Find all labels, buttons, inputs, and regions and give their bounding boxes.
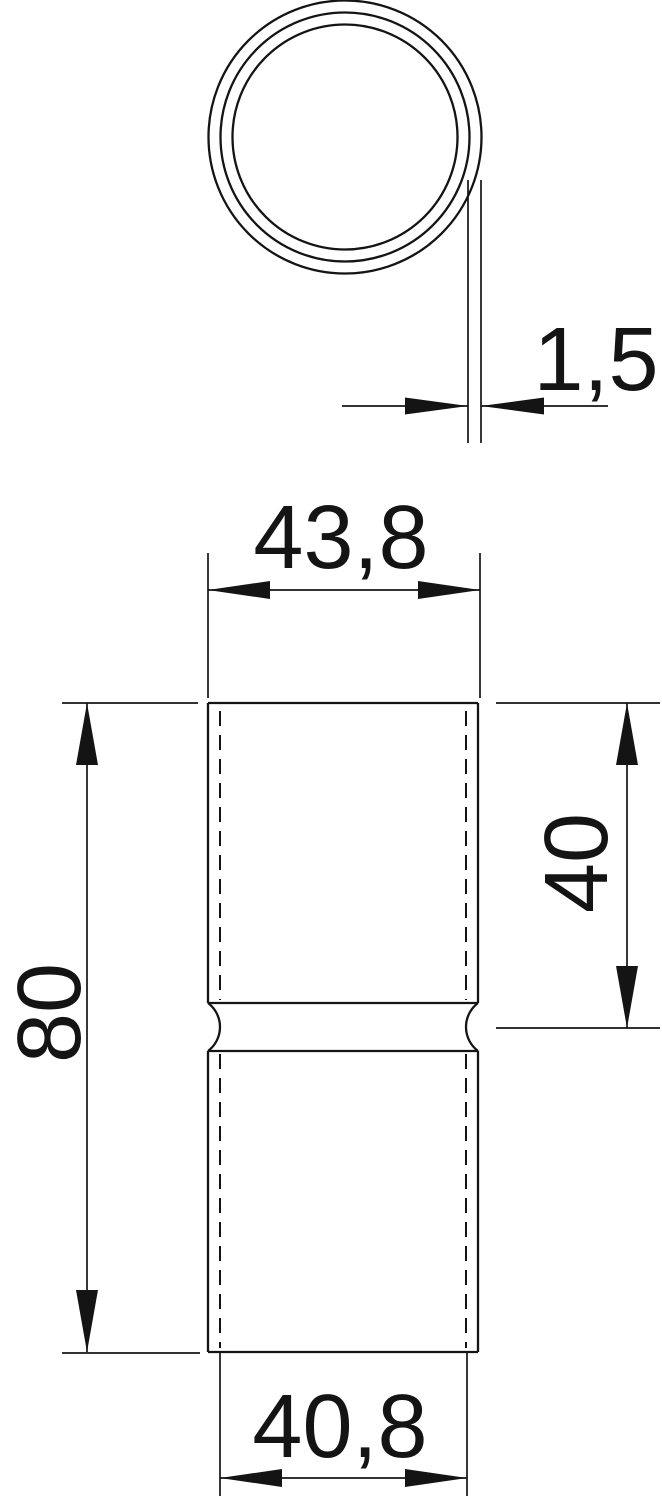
waist-right-bead-arc — [466, 1003, 478, 1051]
arrowhead-down-icon — [76, 1290, 98, 1352]
arrowhead-down-icon — [616, 966, 638, 1028]
pipe-coupling-dimension-drawing: 1,5 43,8 — [0, 0, 662, 1500]
arrowhead-up-icon — [76, 703, 98, 765]
label-outer-width: 43,8 — [253, 488, 428, 588]
dim-overall-length: 80 — [0, 703, 200, 1353]
dim-inner-width: 40,8 — [220, 1353, 467, 1496]
arrowhead-up-icon — [616, 703, 638, 765]
front-view-body — [208, 703, 478, 1352]
label-wall-thickness: 1,5 — [533, 310, 658, 410]
dim-socket-depth: 40 — [496, 703, 660, 1028]
label-overall-length: 80 — [0, 963, 100, 1063]
label-socket-depth: 40 — [527, 813, 627, 913]
label-inner-width: 40,8 — [252, 1377, 427, 1477]
inner-diameter-circle — [233, 25, 458, 250]
top-view-cross-section — [209, 1, 482, 274]
dim-outer-width: 43,8 — [208, 488, 480, 698]
outer-diameter-circle — [209, 1, 482, 274]
middle-diameter-circle — [221, 13, 470, 262]
waist-left-bead-arc — [208, 1003, 220, 1051]
arrowhead-right-icon — [405, 398, 468, 415]
technical-drawing-canvas: 1,5 43,8 — [0, 0, 662, 1500]
dim-wall-thickness: 1,5 — [342, 180, 659, 443]
